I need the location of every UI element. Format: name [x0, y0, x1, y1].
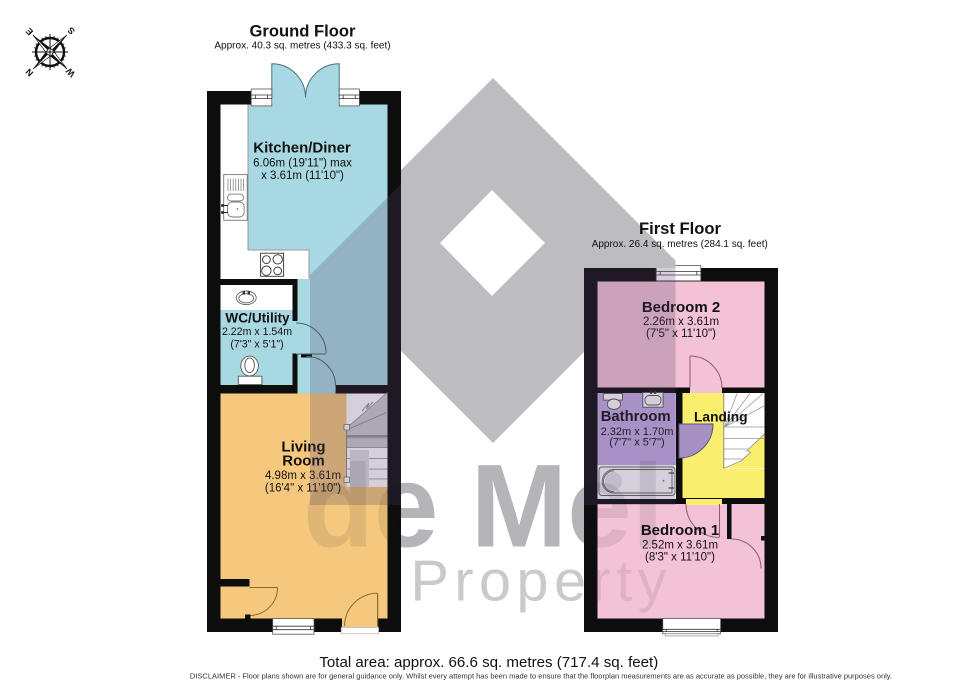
- svg-text:(7'3" x 5'1"): (7'3" x 5'1"): [230, 339, 283, 351]
- svg-text:Kitchen/Diner: Kitchen/Diner: [253, 140, 351, 157]
- svg-text:6.06m (19'11") max: 6.06m (19'11") max: [253, 158, 352, 170]
- svg-text:2.22m x 1.54m: 2.22m x 1.54m: [222, 326, 292, 338]
- svg-text:First Floor: First Floor: [639, 219, 722, 238]
- svg-text:Approx. 40.3 sq. metres (433.3: Approx. 40.3 sq. metres (433.3 sq. feet): [214, 41, 390, 52]
- svg-text:Total area: approx. 66.6 sq. m: Total area: approx. 66.6 sq. metres (717…: [319, 654, 658, 671]
- svg-text:Landing: Landing: [694, 410, 748, 425]
- svg-text:x 3.61m (11'10"): x 3.61m (11'10"): [261, 170, 344, 182]
- svg-text:Approx. 26.4 sq. metres (284.1: Approx. 26.4 sq. metres (284.1 sq. feet): [592, 239, 768, 250]
- svg-text:DISCLAIMER - Floor plans show: DISCLAIMER - Floor plans shown are for g…: [190, 672, 892, 681]
- svg-text:Ground Floor: Ground Floor: [250, 22, 357, 41]
- svg-text:WC/Utility: WC/Utility: [225, 311, 290, 326]
